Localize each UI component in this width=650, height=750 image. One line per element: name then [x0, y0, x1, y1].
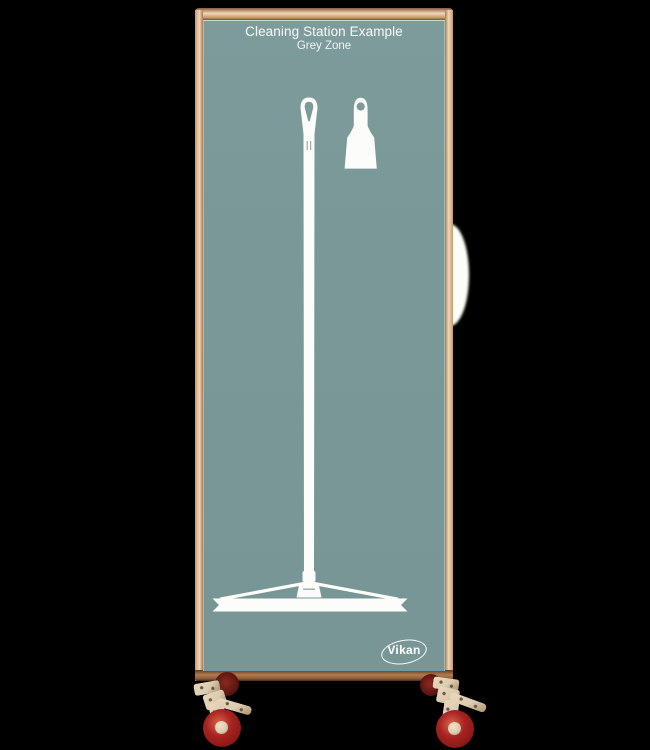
board-frame-left — [195, 10, 203, 681]
product-photo: Cleaning Station Example Grey Zone Vikan — [0, 0, 650, 750]
board-frame-right — [445, 10, 453, 681]
board-title: Cleaning Station Example — [203, 24, 445, 39]
caster-wheel-hub — [448, 722, 461, 735]
vikan-logo-text: Vikan — [380, 643, 428, 657]
front-caster-right — [425, 674, 497, 750]
board-subtitle: Grey Zone — [203, 40, 445, 52]
caster-wheel-hub — [215, 721, 228, 734]
vikan-logo: Vikan — [380, 636, 428, 667]
shadow-board-panel — [203, 20, 445, 671]
board-frame-top — [195, 8, 453, 20]
front-caster-left — [190, 676, 260, 750]
